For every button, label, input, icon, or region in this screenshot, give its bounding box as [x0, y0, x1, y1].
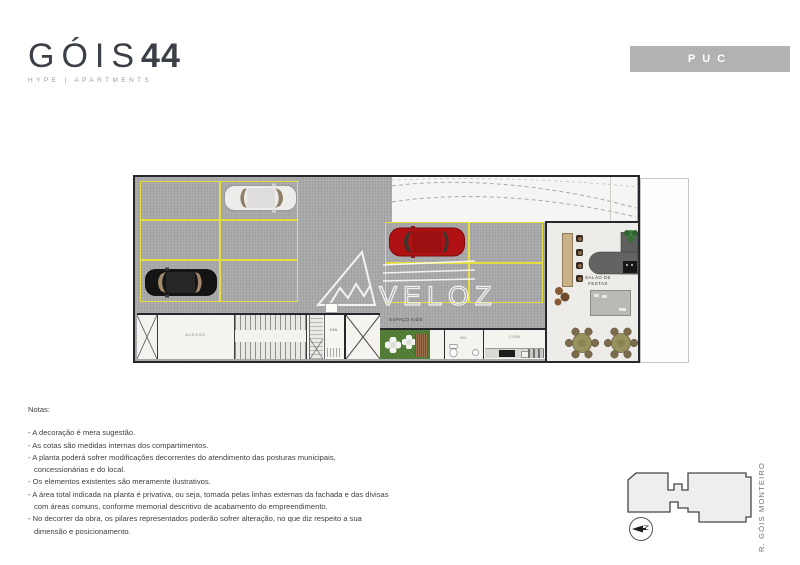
wall-recess: [325, 303, 338, 313]
stall-line: [468, 223, 470, 302]
location-badge: PUC: [630, 46, 790, 72]
game-table: [590, 290, 631, 316]
storage-room: DML: [324, 315, 343, 359]
brand-wordmark: GÓIS44: [28, 38, 181, 74]
north-letter: N: [642, 525, 651, 530]
stall-line: [219, 182, 221, 301]
party-room: SALÃO DE FESTAS: [545, 221, 638, 361]
stairs: [234, 315, 307, 359]
note-item: - A área total indicada na planta é priv…: [28, 489, 390, 514]
kids-area-label: ESPAÇO KIDS: [381, 317, 431, 322]
shaft-room: [137, 315, 158, 359]
black-car: [144, 267, 218, 298]
amenity-rooms: WC COPA: [380, 328, 545, 359]
play-equipment: [385, 337, 401, 353]
brand-name: GÓIS: [28, 37, 141, 75]
round-tables: [564, 326, 639, 361]
page: GÓIS44 HYPE | APARTMENTS PUC: [0, 0, 800, 565]
kitchen-room: COPA: [483, 330, 545, 359]
plant: [623, 227, 639, 243]
adjacent-lot-outline: [640, 178, 689, 363]
kitchen-label: COPA: [484, 334, 545, 339]
notes-title: Notas:: [28, 404, 390, 416]
notes-block: Notas: - A decoração é mera sugestão. - …: [28, 404, 390, 538]
toilet: [448, 344, 459, 358]
note-item: - A decoração é mera sugestão.: [28, 427, 390, 439]
white-car: [223, 183, 299, 213]
street-label: R. GÓIS MONTEIRO: [757, 452, 766, 562]
north-indicator: N: [629, 517, 653, 541]
storage-door: [327, 348, 341, 357]
wc-room: WC: [444, 330, 482, 359]
brand-logo: GÓIS44 HYPE | APARTMENTS: [28, 38, 181, 84]
north-arrow-icon: N: [630, 518, 652, 540]
tire-tracks: [392, 177, 637, 222]
play-equipment: [402, 335, 416, 349]
wc-label: WC: [445, 335, 482, 340]
party-room-label: SALÃO DE FESTAS: [565, 275, 631, 286]
note-item: - No decorrer da obra, os pilares repres…: [28, 513, 390, 538]
note-item: - A planta poderá sofrer modificações de…: [28, 452, 390, 477]
brand-tagline: HYPE | APARTMENTS: [28, 77, 181, 84]
stove: [499, 350, 515, 357]
stair-landing: [235, 330, 306, 342]
elevator: [344, 315, 380, 359]
shelving: [528, 349, 544, 358]
brand-number: 44: [141, 37, 181, 75]
location-badge-label: PUC: [688, 53, 732, 65]
sandbox: [415, 334, 428, 357]
vehicle-ramp: [392, 177, 637, 223]
kitchen-counter: [485, 348, 544, 358]
sink: [472, 349, 479, 356]
ramp-divider-line: [610, 177, 611, 222]
ladder-shaft: [309, 315, 323, 359]
storage-room-label: DML: [325, 327, 343, 332]
note-item: - Os elementos existentes são meramente …: [28, 476, 390, 488]
seated-person: [553, 285, 571, 309]
kids-play-area: [380, 330, 430, 359]
service-rooms: ACESSO DML: [137, 313, 380, 359]
note-item: - As cotas são medidas internas dos comp…: [28, 440, 390, 452]
floorplan: VELOZ SALÃO DE FESTAS: [133, 175, 640, 363]
access-room-label: ACESSO: [158, 332, 233, 337]
stall-line: [386, 262, 542, 264]
red-car: [388, 225, 466, 259]
access-room: ACESSO: [158, 315, 233, 359]
